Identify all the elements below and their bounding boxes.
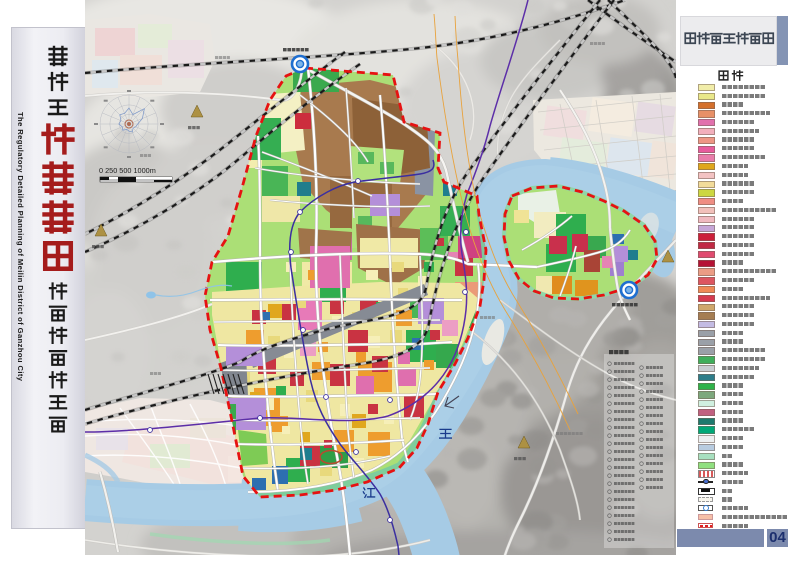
svg-text:0 250 500 1000m: 0 250 500 1000m	[99, 166, 156, 175]
